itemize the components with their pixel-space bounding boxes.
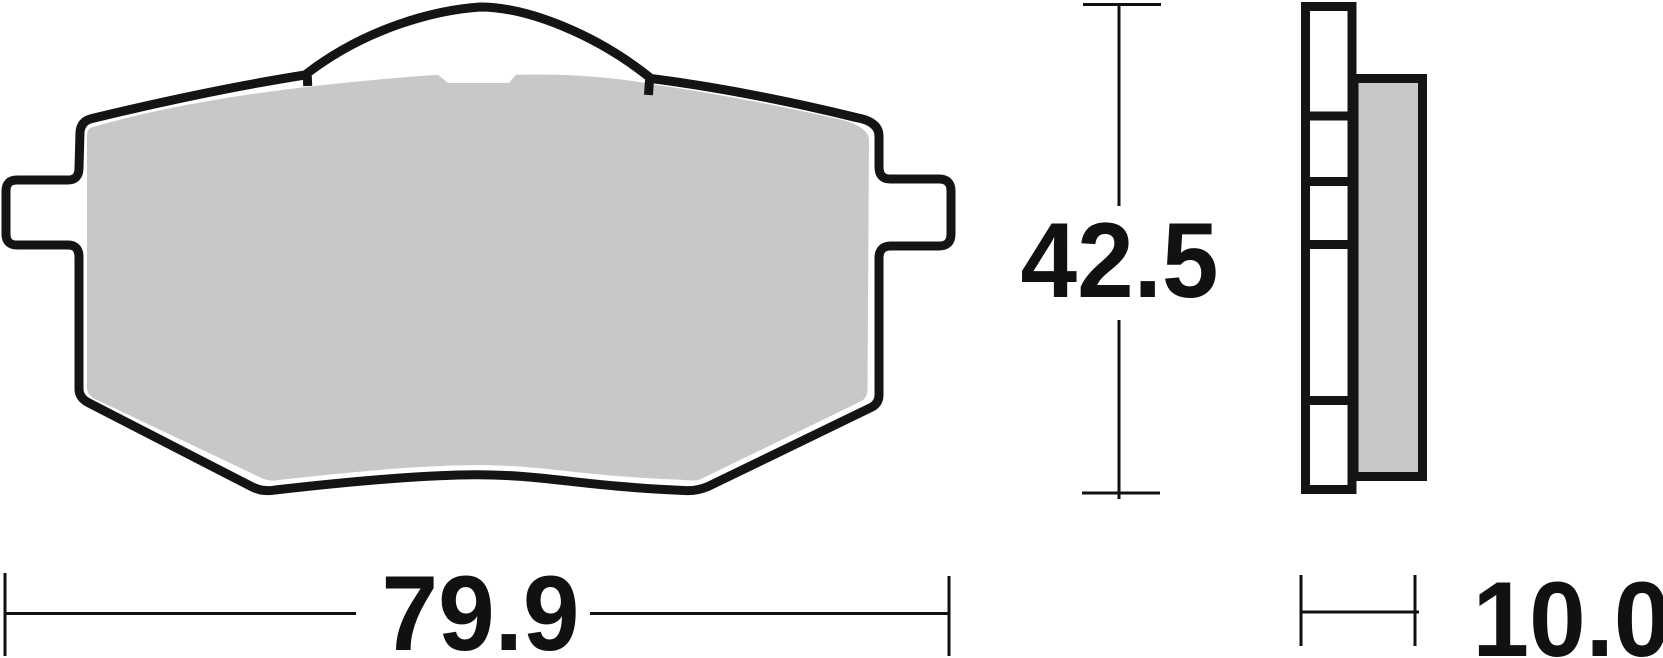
svg-text:42.5: 42.5 <box>1021 200 1219 320</box>
svg-text:79.9: 79.9 <box>382 553 580 658</box>
svg-text:10.0: 10.0 <box>1473 559 1663 658</box>
